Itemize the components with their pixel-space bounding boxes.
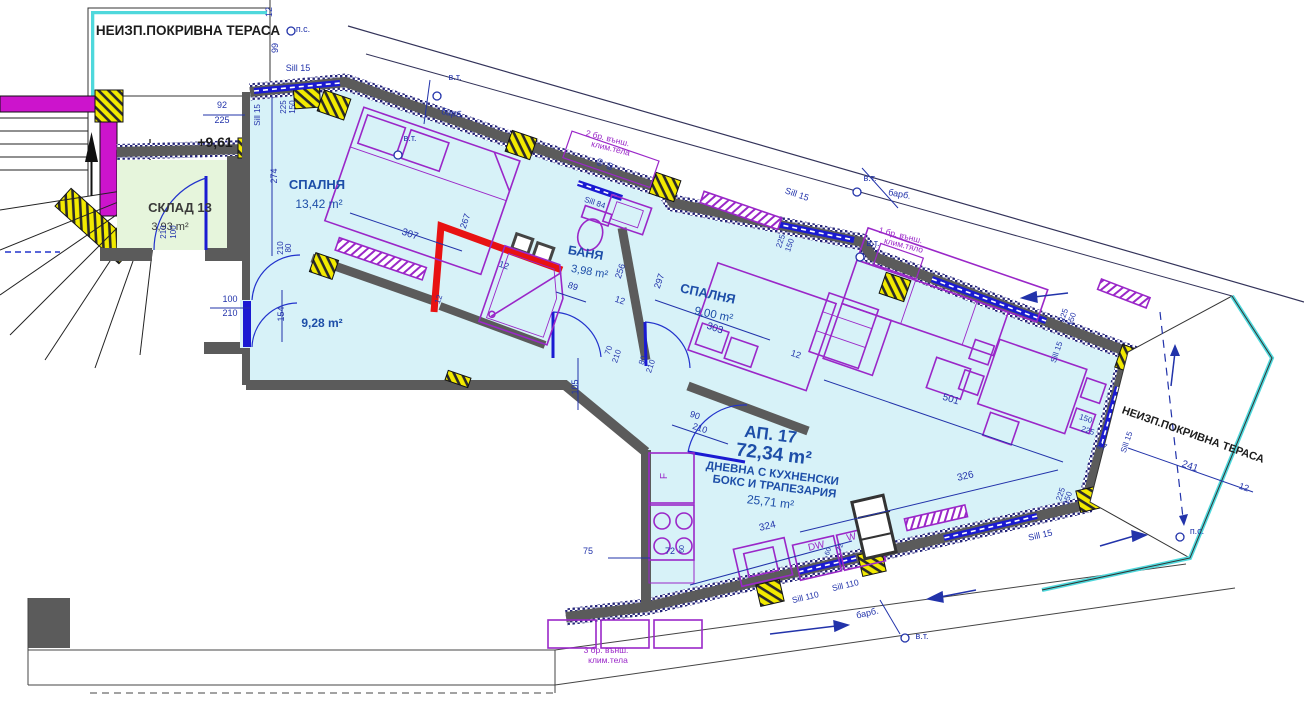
ps-bottom-marker: [1176, 533, 1184, 541]
label-terrace-top: НЕИЗП.ПОКРИВНА ТЕРАСА: [96, 23, 280, 38]
label-dim-154: 154: [276, 306, 286, 321]
label-level: +9,61: [197, 134, 233, 150]
radiator: [1098, 279, 1150, 308]
label-dim-99: 99: [270, 43, 280, 53]
label-dim-150-a: 150: [288, 100, 297, 114]
label-sill110-a: Sill 110: [791, 589, 820, 605]
label-dim-274: 274: [269, 168, 279, 183]
label-dim-225-a: 225: [214, 115, 229, 125]
label-vt-3: в.т.: [864, 173, 877, 183]
label-hall-area: 9,28 m²: [301, 316, 342, 330]
label-door-sklad-100: 100: [169, 225, 178, 239]
label-barb-2: барб.: [888, 187, 912, 201]
label-vt-2: в.т.: [404, 133, 417, 143]
label-dim-92: 92: [217, 100, 227, 110]
label-dim-105: 105: [570, 379, 580, 394]
label-sill110-b: Sill 110: [831, 577, 860, 593]
label-dim-60-b: 60: [679, 545, 686, 553]
label-dim-12-e: 12: [1238, 481, 1251, 494]
label-door-sklad-210: 210: [159, 225, 168, 239]
label-door-b1-210: 210: [276, 241, 285, 255]
label-sill15-a: Sill 15: [286, 63, 311, 73]
label-ps-top: п.с.: [296, 24, 310, 34]
label-dim-12-top: 12: [264, 7, 274, 17]
label-dim-75: 75: [583, 546, 593, 556]
label-dim-225-b: 225: [279, 100, 288, 114]
label-barb-3: барб.: [855, 606, 879, 621]
label-vt-5: в.т.: [916, 631, 929, 641]
stair-direction-arrow: [85, 132, 98, 162]
label-door-b1-80: 80: [284, 243, 293, 252]
label-sklad: СКЛАД 13: [148, 200, 212, 215]
label-ac3-l1: 3 бр. външ.: [584, 645, 629, 655]
label-door-entry-210: 210: [222, 308, 237, 318]
label-vt-4: в.т.: [867, 238, 880, 248]
label-bedroom1-area: 13,42 m²: [295, 197, 342, 211]
label-fridge: F: [659, 473, 670, 479]
label-sill15-b: Sill 15: [253, 104, 262, 126]
label-vt-1: в.т.: [449, 72, 462, 82]
label-ps-bottom: п.с.: [1190, 526, 1204, 536]
label-bedroom1: СПАЛНЯ: [289, 177, 345, 192]
floor-plan-canvas: НЕИЗП.ПОКРИВНА ТЕРАСАп.с.1299Sill 159222…: [0, 0, 1304, 713]
label-sill15-d: Sill 15: [1027, 527, 1053, 542]
floor-plan-page: НЕИЗП.ПОКРИВНА ТЕРАСАп.с.1299Sill 159222…: [0, 0, 1304, 713]
label-sill15-c: Sill 15: [784, 185, 810, 202]
ps-top-marker: [287, 27, 295, 35]
label-dim-72: 72: [665, 546, 675, 556]
label-ac3-l2: клим.тела: [588, 655, 628, 665]
lower-floor-outline: [28, 564, 1235, 693]
label-door-entry-100: 100: [222, 294, 237, 304]
